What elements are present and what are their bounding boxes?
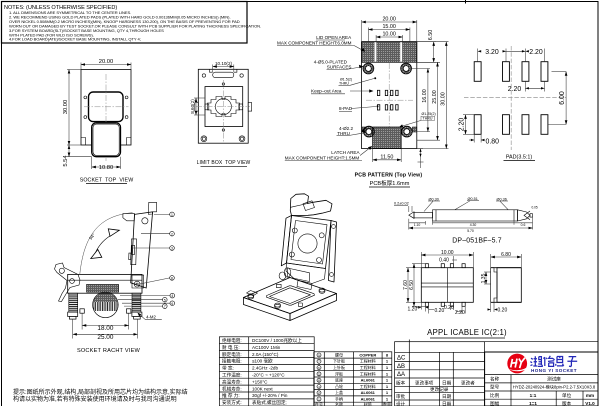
svg-text:日期: 日期 (442, 401, 452, 406)
svg-text:5: 5 (164, 298, 166, 302)
svg-text:上针板: 上针板 (333, 364, 345, 370)
svg-text:版本: 版本 (562, 400, 572, 406)
svg-text:图幅: 图幅 (490, 400, 500, 406)
svg-text:8.60(2): 8.60(2) (190, 99, 195, 114)
svg-text:8-PAD: 8-PAD (339, 106, 353, 111)
svg-text:0.20: 0.20 (435, 308, 445, 314)
svg-text:25.00: 25.00 (97, 334, 113, 341)
svg-text:2.0A (150°C): 2.0A (150°C) (252, 352, 279, 357)
svg-text:PCB板厚1.6mm: PCB板厚1.6mm (370, 179, 410, 187)
svg-text:COPPER: COPPER (359, 352, 376, 357)
svg-text:5.70: 5.70 (467, 229, 474, 233)
svg-text:安装方式:: 安装方式: (222, 399, 242, 406)
svg-text:+150°C: +150°C (252, 379, 268, 384)
svg-text:LID OPEN AREA: LID OPEN AREA (316, 35, 352, 40)
svg-text:4.30: 4.30 (470, 223, 477, 227)
svg-text:设计: 设计 (396, 400, 406, 406)
svg-text:DC100V / 1000兆欧以上: DC100V / 1000兆欧以上 (252, 337, 302, 344)
svg-text:更改者: 更改者 (461, 380, 475, 387)
svg-text:-20°C ~ +120°C: -20°C ~ +120°C (252, 373, 285, 378)
svg-text:0.05: 0.05 (532, 206, 538, 210)
svg-text:6.80: 6.80 (501, 252, 511, 258)
svg-text:30.00: 30.00 (63, 100, 69, 115)
svg-text:0.20: 0.20 (444, 305, 454, 311)
svg-text:ΔC: ΔC (397, 356, 406, 362)
svg-text:1.10: 1.10 (414, 223, 421, 227)
svg-text:绝缘电阻:: 绝缘电阻: (222, 337, 242, 344)
svg-text:1.20: 1.20 (408, 307, 418, 313)
svg-text:高温寿命:: 高温寿命: (222, 378, 242, 385)
svg-text:DP–051BF–5.7: DP–051BF–5.7 (452, 237, 502, 244)
svg-text:机械寿命:: 机械寿命: (222, 385, 242, 392)
svg-text:MAX COMPONENT HEIGHT:6.0MM: MAX COMPONENT HEIGHT:6.0MM (277, 40, 352, 45)
svg-text:SURFACES: SURFACES (327, 64, 352, 69)
svg-text:30.00: 30.00 (441, 92, 447, 106)
svg-text:7: 7 (164, 305, 166, 309)
svg-text:THRU: THRU (337, 131, 350, 136)
svg-text:凸轮: 凸轮 (335, 383, 343, 389)
svg-text:比例: 比例 (490, 392, 500, 399)
svg-text:5.54: 5.54 (63, 155, 69, 167)
svg-text:版本: 版本 (396, 380, 406, 387)
svg-text:3.20: 3.20 (485, 49, 499, 56)
svg-text:1:1: 1:1 (530, 393, 537, 398)
svg-text:ΔA: ΔA (397, 372, 405, 378)
svg-text:Ø0.30: Ø0.30 (429, 197, 439, 201)
svg-text:审批: 审批 (396, 393, 406, 400)
svg-text:PCB PATTERN (Top View): PCB PATTERN (Top View) (355, 173, 423, 179)
svg-text:更改事项: 更改事项 (415, 380, 434, 387)
svg-text:AL6061: AL6061 (361, 390, 376, 395)
svg-text:V1.0: V1.0 (585, 401, 595, 406)
svg-text:15.00: 15.00 (382, 24, 396, 30)
svg-text:0.20: 0.20 (498, 308, 508, 314)
svg-text:推 荐 力:: 推 荐 力: (222, 392, 240, 399)
svg-text:MAX COMPONENT HEIGHT:1.5MM: MAX COMPONENT HEIGHT:1.5MM (285, 155, 360, 160)
svg-text:Keep–out Area: Keep–out Area (311, 89, 342, 94)
svg-text:20.00: 20.00 (99, 59, 114, 65)
svg-text:10.10(2): 10.10(2) (215, 61, 233, 66)
svg-text:2.20: 2.20 (529, 49, 543, 56)
svg-text:手柄: 手柄 (335, 395, 343, 401)
svg-text:20.00: 20.00 (382, 17, 396, 23)
svg-text:1=1: 1=1 (529, 401, 537, 406)
svg-text:HYDZ-20240924-模块8pin-P2.2-7.5X: HYDZ-20240924-模块8pin-P2.2-7.5X10X3.8 (513, 384, 596, 391)
svg-text:Ø0.51: Ø0.51 (468, 197, 478, 201)
svg-text:10.00: 10.00 (441, 250, 454, 256)
svg-text:工程材料: 工程材料 (360, 358, 376, 364)
svg-text:工程材料: 工程材料 (360, 383, 376, 389)
svg-text:更改记录: 更改记录 (430, 386, 449, 393)
svg-text:SOCKET TOP VIEW: SOCKET TOP VIEW (80, 178, 134, 184)
svg-text:0.2±0.02: 0.2±0.02 (394, 202, 409, 206)
svg-text:2.20: 2.20 (459, 118, 466, 132)
svg-text:mm: mm (586, 393, 594, 398)
svg-text:数量: 数量 (383, 401, 391, 406)
svg-text:构请以实物为准,若有特殊安装使用环境请及时与我司沟通说明: 构请以实物为准,若有特殊安装使用环境请及时与我司沟通说明 (13, 395, 177, 403)
svg-text:额定电流:: 额定电流: (222, 351, 242, 358)
svg-text:耐 电 压:: 耐 电 压: (222, 344, 240, 351)
svg-text:2.20: 2.20 (508, 86, 522, 93)
svg-text:Ø1.25(2): Ø1.25(2) (422, 112, 436, 116)
svg-text:THRU: THRU (423, 117, 433, 121)
svg-text:AL6061: AL6061 (361, 396, 376, 401)
svg-text:APPL ICABLE IC(2:1): APPL ICABLE IC(2:1) (427, 328, 507, 337)
svg-text:单位: 单位 (562, 392, 572, 399)
svg-text:SOCKET RACHT VIEW: SOCKET RACHT VIEW (77, 348, 141, 354)
svg-text:工程材料: 工程材料 (360, 370, 376, 376)
svg-text:ΔB: ΔB (397, 364, 405, 370)
svg-text:4-M2: 4-M2 (146, 314, 156, 319)
svg-text:AL6061: AL6061 (361, 378, 376, 383)
svg-text:1: 1 (171, 213, 173, 217)
svg-text:1.35: 1.35 (481, 273, 487, 283)
svg-text:LATCH AREA: LATCH AREA (331, 150, 360, 155)
svg-text:件号: 件号 (315, 401, 323, 406)
svg-text:型号: 型号 (490, 384, 500, 391)
svg-text:100K next: 100K next (252, 386, 273, 391)
svg-text:25.00: 25.00 (432, 90, 438, 104)
svg-text:16.00: 16.00 (422, 89, 428, 103)
svg-text:10.80: 10.80 (99, 165, 114, 171)
svg-text:螺母: 螺母 (335, 351, 343, 357)
svg-text:测试座: 测试座 (547, 376, 561, 383)
svg-text:4: 4 (171, 294, 173, 298)
svg-text:6.50: 6.50 (409, 280, 415, 290)
svg-text:2.20: 2.20 (455, 310, 465, 316)
svg-text:HONG YI SOCKET: HONG YI SOCKET (531, 368, 577, 373)
svg-text:≤100 毫欧: ≤100 毫欧 (252, 358, 273, 365)
svg-text:提示:图纸所示外观,结构,局部剖视及所用芯片均为结构示意,实: 提示:图纸所示外观,结构,局部剖视及所用芯片均为结构示意,实际结 (13, 388, 188, 396)
svg-text:Ø0.36: Ø0.36 (497, 197, 507, 201)
svg-text:浮板: 浮板 (335, 370, 343, 376)
svg-text:2.4GHz -2db: 2.4GHz -2db (252, 366, 278, 371)
svg-text:10.00: 10.00 (382, 32, 396, 38)
svg-text:底座: 底座 (335, 377, 343, 383)
svg-text:0.80: 0.80 (486, 139, 500, 146)
svg-text:18.00: 18.00 (97, 325, 113, 332)
svg-text:THRU: THRU (339, 82, 349, 86)
svg-text:AC100V 1Min: AC100V 1Min (252, 345, 281, 350)
svg-text:下针板: 下针板 (333, 358, 345, 364)
svg-text:接触电阻:: 接触电阻: (222, 358, 242, 365)
svg-text:0.40: 0.40 (439, 257, 449, 263)
svg-text:带 宽:: 带 宽: (222, 365, 234, 372)
svg-text:6.00: 6.00 (559, 91, 566, 105)
svg-text:30gf +/-20% / Pin: 30gf +/-20% / Pin (252, 393, 288, 398)
svg-text:表贴式,螺丝固定;: 表贴式,螺丝固定; (252, 399, 287, 406)
svg-text:PAD(3.5:1): PAD(3.5:1) (506, 155, 532, 161)
svg-text:材质: 材质 (364, 401, 372, 406)
svg-text:名称: 名称 (335, 401, 343, 406)
svg-text:6: 6 (171, 302, 173, 306)
svg-text:2: 2 (171, 232, 173, 236)
svg-text:工作温度:: 工作温度: (222, 372, 242, 379)
svg-text:0.6: 0.6 (521, 223, 526, 227)
svg-text:11.50: 11.50 (380, 154, 393, 160)
svg-text:上盖: 上盖 (335, 389, 343, 395)
svg-text:6.50: 6.50 (428, 30, 434, 41)
svg-text:4.FOR LOAD BOARD(ATE)/SOCKET B: 4.FOR LOAD BOARD(ATE)/SOCKET BASE MOUNTI… (9, 37, 141, 42)
svg-text:名称: 名称 (490, 376, 500, 383)
svg-text:8: 8 (171, 277, 173, 281)
svg-text:3: 3 (171, 247, 173, 251)
svg-text:LIMIT BOX TOP VIEW: LIMIT BOX TOP VIEW (197, 160, 251, 166)
svg-text:工程材料: 工程材料 (360, 364, 376, 370)
